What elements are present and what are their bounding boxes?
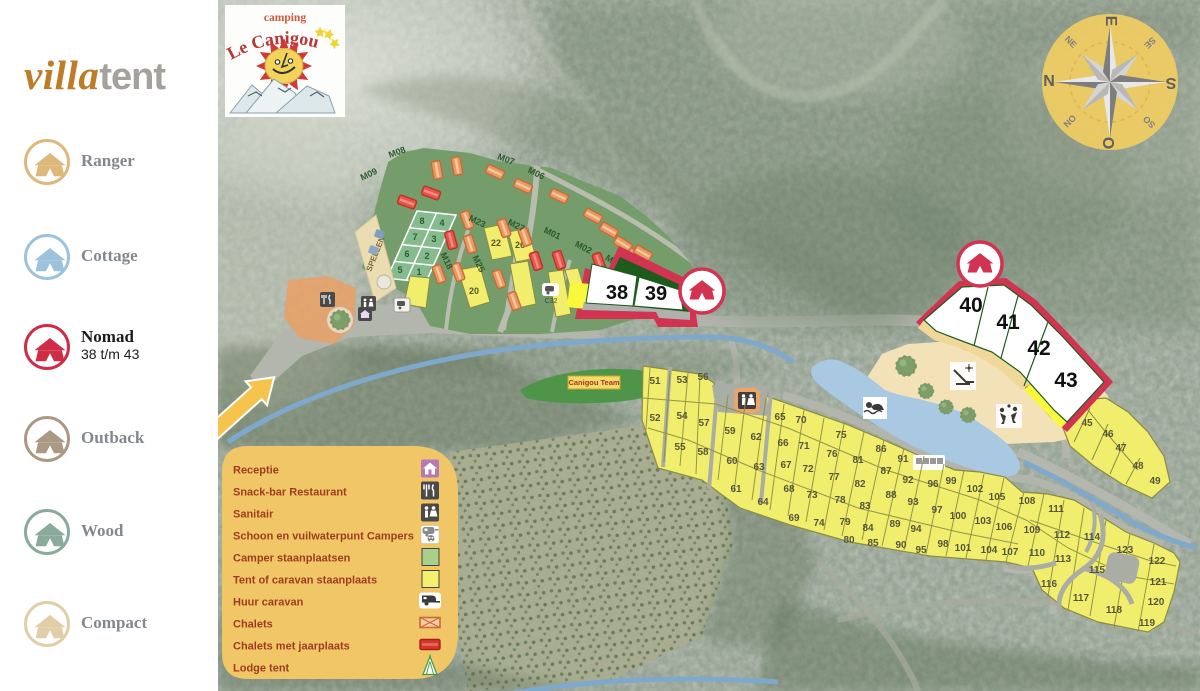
svg-text:Snack-bar Restaurant: Snack-bar Restaurant bbox=[233, 487, 347, 499]
svg-text:7: 7 bbox=[412, 232, 417, 242]
svg-text:20: 20 bbox=[469, 286, 479, 296]
svg-text:Canigou Team: Canigou Team bbox=[568, 378, 619, 387]
svg-text:91: 91 bbox=[897, 454, 909, 465]
svg-text:67: 67 bbox=[780, 460, 792, 471]
svg-text:C32: C32 bbox=[545, 298, 558, 305]
svg-text:56: 56 bbox=[697, 372, 709, 383]
svg-text:59: 59 bbox=[724, 426, 736, 437]
svg-text:121: 121 bbox=[1150, 577, 1167, 588]
svg-text:65: 65 bbox=[774, 412, 786, 423]
svg-text:3: 3 bbox=[431, 234, 436, 244]
svg-text:71: 71 bbox=[798, 441, 810, 452]
svg-text:Receptie: Receptie bbox=[233, 465, 279, 477]
svg-text:93: 93 bbox=[907, 497, 919, 508]
svg-text:O: O bbox=[1101, 137, 1118, 149]
svg-text:75: 75 bbox=[835, 430, 847, 441]
svg-text:76: 76 bbox=[826, 449, 838, 460]
svg-text:48: 48 bbox=[1132, 461, 1144, 472]
svg-text:99: 99 bbox=[945, 476, 957, 487]
svg-text:61: 61 bbox=[730, 484, 742, 495]
svg-text:70: 70 bbox=[795, 415, 807, 426]
svg-text:60: 60 bbox=[726, 456, 738, 467]
svg-text:54: 54 bbox=[676, 411, 688, 422]
svg-text:107: 107 bbox=[1002, 547, 1019, 558]
svg-text:82: 82 bbox=[854, 479, 866, 490]
svg-text:102: 102 bbox=[967, 484, 984, 495]
svg-text:5: 5 bbox=[397, 265, 402, 275]
svg-text:8: 8 bbox=[419, 216, 424, 226]
svg-text:73: 73 bbox=[806, 490, 818, 501]
svg-text:115: 115 bbox=[1089, 565, 1106, 576]
svg-text:78: 78 bbox=[834, 495, 846, 506]
svg-text:94: 94 bbox=[910, 524, 922, 535]
svg-text:80: 80 bbox=[843, 535, 855, 546]
svg-text:105: 105 bbox=[989, 492, 1006, 503]
svg-text:108: 108 bbox=[1019, 496, 1036, 507]
svg-text:90: 90 bbox=[895, 540, 907, 551]
svg-text:96: 96 bbox=[927, 479, 939, 490]
svg-text:42: 42 bbox=[1027, 337, 1050, 360]
svg-text:79: 79 bbox=[839, 517, 851, 528]
svg-text:Camper staanplaatsen: Camper staanplaatsen bbox=[233, 553, 351, 565]
svg-text:Chalets met jaarplaats: Chalets met jaarplaats bbox=[233, 641, 350, 653]
svg-text:97: 97 bbox=[931, 505, 943, 516]
svg-text:101: 101 bbox=[955, 543, 972, 554]
svg-text:6: 6 bbox=[404, 249, 409, 259]
svg-text:104: 104 bbox=[981, 545, 998, 556]
svg-text:81: 81 bbox=[852, 455, 864, 466]
svg-text:57: 57 bbox=[698, 418, 710, 429]
svg-text:66: 66 bbox=[777, 438, 789, 449]
svg-text:Lodge tent: Lodge tent bbox=[233, 663, 290, 675]
svg-text:120: 120 bbox=[1148, 597, 1165, 608]
svg-text:87: 87 bbox=[880, 466, 892, 477]
svg-text:43: 43 bbox=[1054, 369, 1077, 392]
svg-text:41: 41 bbox=[996, 311, 1020, 334]
svg-text:2: 2 bbox=[424, 251, 429, 261]
svg-text:Chalets: Chalets bbox=[233, 619, 273, 631]
svg-text:119: 119 bbox=[1139, 618, 1156, 629]
svg-text:53: 53 bbox=[676, 375, 688, 386]
svg-text:106: 106 bbox=[996, 522, 1013, 533]
svg-text:camping: camping bbox=[264, 12, 306, 24]
svg-text:103: 103 bbox=[975, 516, 992, 527]
svg-text:22: 22 bbox=[491, 238, 501, 248]
svg-text:38: 38 bbox=[606, 282, 628, 304]
svg-text:64: 64 bbox=[757, 497, 769, 508]
svg-text:110: 110 bbox=[1029, 548, 1046, 559]
svg-text:109: 109 bbox=[1024, 525, 1041, 536]
svg-text:S: S bbox=[1165, 74, 1176, 91]
svg-text:47: 47 bbox=[1115, 443, 1127, 454]
svg-text:E: E bbox=[1102, 16, 1119, 27]
svg-text:89: 89 bbox=[889, 519, 901, 530]
svg-text:77: 77 bbox=[828, 472, 840, 483]
svg-text:49: 49 bbox=[1149, 476, 1161, 487]
svg-text:122: 122 bbox=[1149, 556, 1166, 567]
svg-text:88: 88 bbox=[885, 490, 897, 501]
svg-text:111: 111 bbox=[1048, 504, 1064, 515]
svg-text:45: 45 bbox=[1081, 418, 1093, 429]
svg-text:68: 68 bbox=[783, 484, 795, 495]
svg-text:95: 95 bbox=[915, 545, 927, 556]
svg-text:112: 112 bbox=[1054, 530, 1071, 541]
svg-text:39: 39 bbox=[645, 283, 667, 305]
svg-text:Huur caravan: Huur caravan bbox=[233, 597, 304, 609]
svg-text:63: 63 bbox=[753, 462, 765, 473]
svg-text:117: 117 bbox=[1073, 593, 1090, 604]
svg-text:69: 69 bbox=[788, 513, 800, 524]
svg-text:58: 58 bbox=[697, 447, 709, 458]
svg-text:4: 4 bbox=[439, 218, 444, 228]
svg-text:113: 113 bbox=[1055, 554, 1072, 565]
svg-text:98: 98 bbox=[937, 539, 949, 550]
svg-text:46: 46 bbox=[1102, 429, 1114, 440]
svg-text:74: 74 bbox=[813, 518, 825, 529]
svg-text:84: 84 bbox=[862, 523, 874, 534]
svg-text:72: 72 bbox=[802, 464, 814, 475]
svg-text:123: 123 bbox=[1117, 545, 1134, 556]
svg-text:40: 40 bbox=[959, 294, 982, 317]
svg-text:116: 116 bbox=[1041, 579, 1058, 590]
svg-text:1: 1 bbox=[416, 267, 421, 277]
svg-text:N: N bbox=[1043, 73, 1055, 90]
svg-text:100: 100 bbox=[950, 511, 967, 522]
svg-text:Schoon en vuilwaterpunt Camper: Schoon en vuilwaterpunt Campers bbox=[233, 531, 414, 543]
svg-text:62: 62 bbox=[750, 432, 762, 443]
svg-text:86: 86 bbox=[875, 444, 887, 455]
svg-text:Sanitair: Sanitair bbox=[233, 509, 274, 521]
svg-text:85: 85 bbox=[867, 538, 879, 549]
svg-text:83: 83 bbox=[859, 501, 871, 512]
svg-text:Tent of caravan staanplaats: Tent of caravan staanplaats bbox=[233, 575, 377, 587]
svg-text:118: 118 bbox=[1106, 605, 1123, 616]
svg-text:55: 55 bbox=[674, 442, 686, 453]
svg-text:92: 92 bbox=[902, 475, 914, 486]
svg-text:52: 52 bbox=[649, 413, 661, 424]
svg-text:51: 51 bbox=[649, 376, 661, 387]
svg-text:114: 114 bbox=[1084, 532, 1101, 543]
